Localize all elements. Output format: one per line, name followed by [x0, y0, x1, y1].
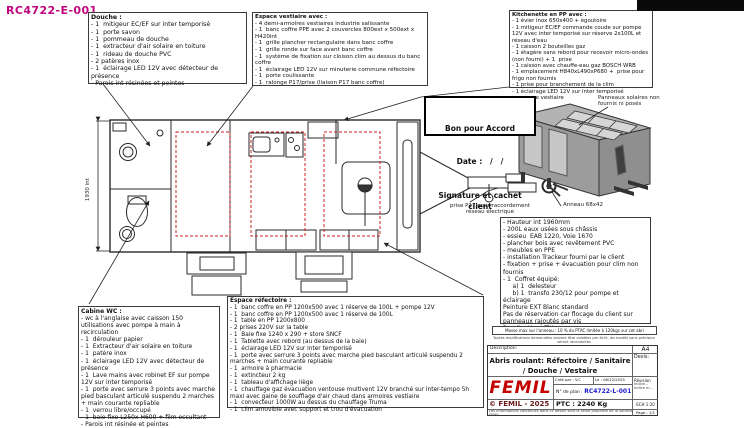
scale: ECH 1:20	[633, 400, 658, 410]
plan-number: RC4722-L-001	[584, 388, 631, 395]
list-item: - 1 chauffage gaz évacuation ventouse mu…	[230, 387, 481, 401]
list-item: - 1 mitigeur EC/EF sur inter temporisé	[91, 21, 244, 28]
fine-print-strip: Toutes modifications demandées doivent ê…	[490, 337, 658, 345]
list-item: - 1 dérouleur papier	[81, 336, 217, 343]
list-item: Pas de réservation car flocage du client…	[503, 311, 648, 325]
list-item: - 1 verrou libre/occupé	[81, 407, 217, 414]
list-item: - 1 clim amovible avec support et trou d…	[230, 407, 481, 414]
list-item: - 1 porte coulissante	[255, 73, 425, 80]
trailer-3d-view	[519, 104, 650, 196]
drawing-sheet: { "sheet_ref": "RC4722-E-001", "colors":…	[0, 0, 744, 422]
legal-note: Les informations contenues dans ce dessi…	[488, 410, 633, 416]
list-item: - 1 banc coffre en PP 1200x500 avec 1 ré…	[230, 312, 481, 319]
dimension-1930	[96, 121, 110, 251]
ring-label: Anneau 68x42	[563, 202, 613, 208]
list-item: - 1 étagère sans rebord pour recevoir mi…	[512, 50, 650, 63]
list-item: - 1 éclairage LED 12V avec détecteur de …	[91, 65, 244, 80]
list-item: - 1 système de fixation sur cloison clim…	[255, 54, 425, 67]
general-specs-items: - Hauteur int 1960mm- 200L eaux usées so…	[503, 219, 648, 332]
kitchenette-panel: Kitchenette en PP avec : - 1 évier inox …	[509, 10, 653, 88]
list-item: - 1 tableau d'affichage liège	[230, 380, 481, 387]
list-item: - 1 ralonge P17/prise (liaison P17 banc …	[255, 80, 425, 87]
list-item: - 1 rideau de douche PVC	[91, 51, 244, 58]
approval-line2: Date : / /	[426, 156, 534, 167]
approval-box: Bon pour Accord Date : / / Signature et …	[424, 96, 536, 136]
page-number: Page : 1/1	[633, 410, 658, 416]
list-item: - 1 Baie fixe 1240 x 290 + store SNCF	[230, 332, 481, 339]
drawing-description: Abris roulant: Réfectoire / Sanitaire / …	[488, 354, 633, 377]
list-item: - Parois int résinée et peintes	[81, 421, 217, 428]
list-item: - 1 patère inox	[81, 350, 217, 357]
list-item: - installation Trackeur fourni par le cl…	[503, 254, 648, 261]
list-item: - 200L eaux usées sous châssis	[503, 226, 648, 233]
list-item: b) 1 transfo 230/12 pour pompe et éclair…	[503, 290, 648, 304]
list-item: - Parois int résinées et peintes	[91, 80, 244, 87]
list-item: - 1 grille ronde sur face avant banc cof…	[255, 47, 425, 54]
copyright: © FEMIL - 2025	[488, 400, 554, 410]
list-item: - meubles en PPE	[503, 247, 648, 254]
list-item: - 1 Lave mains avec robinet EF sur pompe…	[81, 372, 217, 386]
list-item: - 1 extincteur 2 kg	[230, 373, 481, 380]
cabine-wc-items: - wc à l'anglaise avec caisson 150 utili…	[81, 315, 217, 428]
refectoire-title: Espace réfectoire :	[230, 298, 481, 305]
list-item: - 1 Tablette avec rebord (au dessus de l…	[230, 339, 481, 346]
created-by: Créé par : V.C	[554, 377, 594, 385]
list-item: - fixation + prise + évacuation pour cli…	[503, 261, 648, 275]
vestiaire-title: Espace vestiaire avec :	[255, 14, 425, 21]
devis-label: Devis:	[633, 354, 658, 377]
list-item: - 1 Coffret équipé:	[503, 276, 648, 283]
interior-height-dim-label: 1930 int	[85, 161, 91, 201]
screen-bezel-bar	[637, 0, 744, 11]
list-item: a) 1 delesteur	[503, 283, 648, 290]
list-item: - 1 porte avec serrure 3 points avec mar…	[81, 386, 217, 407]
list-item: - plancher bois avec revêtement PVC	[503, 240, 648, 247]
paper-format: A4	[633, 346, 658, 354]
list-item: - 1 éclairage LED 12V sur minuterie comm…	[255, 67, 425, 74]
approval-line1: Bon pour Accord	[426, 123, 534, 134]
list-item: - 1 extracteur d'air solaire en toiture	[91, 43, 244, 50]
creation-date: Le : 06/12/2025	[594, 377, 633, 385]
sheet-reference: RC4722-E-001	[6, 4, 98, 17]
list-item: - 1 table en PP 1200x800	[230, 318, 481, 325]
title-block: Description: A4 Abris roulant: Réfectoir…	[487, 345, 658, 416]
list-item: - 1 armoire à pharmacie	[230, 366, 481, 373]
list-item: - 1 grille plancher rectangulaire dans b…	[255, 40, 425, 47]
revision-cell: Révision Indice... Indice m...	[633, 377, 658, 400]
list-item: - 4 demi-armoires vestiaires industrie s…	[255, 21, 425, 28]
cabine-wc-title: Cabine WC :	[81, 308, 217, 315]
list-item: - 1 mitigeur EC/EF commande coude sur po…	[512, 25, 650, 44]
list-item: - 1 porte avec serrure 3 points avec mar…	[230, 353, 481, 367]
approval-line3: Signature et cachet client	[426, 190, 534, 213]
femil-logo: FEMIL	[488, 377, 554, 400]
list-item: - 1 éclairage LED 12V avec détecteur de …	[81, 358, 217, 372]
douche-panel: Douche : - 1 mitigeur EC/EF sur inter te…	[88, 12, 247, 84]
list-item: - 1 éclairage LED 12V sur inter temporis…	[230, 346, 481, 353]
list-item: - 1 porte savon	[91, 29, 244, 36]
list-item: - 1 emplacement H840xL490xP680 + prise p…	[512, 69, 650, 82]
entry-steps	[187, 252, 352, 295]
list-item: - 1 baie fixe L250x H600 + film occultan…	[81, 414, 217, 421]
list-item: - 1 Extracteur d'air solaire en toiture	[81, 343, 217, 350]
cabine-wc-panel: Cabine WC : - wc à l'anglaise avec caiss…	[78, 306, 220, 418]
kitchenette-items: - 1 évier inox 650x400 + égoutoire- 1 mi…	[512, 18, 650, 101]
general-specs-panel: - Hauteur int 1960mm- 200L eaux usées so…	[500, 217, 651, 324]
masse-note-strip: Masse max sur l'anneau : 10 % du PTAC li…	[492, 326, 657, 335]
refectoire-items: - 1 banc coffre en PP 1200x500 avec 1 ré…	[230, 305, 481, 414]
list-item: - wc à l'anglaise avec caisson 150 utili…	[81, 315, 217, 336]
list-item: - 1 banc coffre en PP 1200x500 avec 1 ré…	[230, 305, 481, 312]
refectoire-panel: Espace réfectoire : - 1 banc coffre en P…	[227, 296, 484, 408]
vestiaire-items: - 4 demi-armoires vestiaires industrie s…	[255, 21, 425, 87]
ptc-weight: PTC : 2240 Kg	[554, 400, 633, 410]
douche-items: - 1 mitigeur EC/EF sur inter temporisé- …	[91, 21, 244, 87]
revision-line2: Indice m...	[634, 387, 657, 391]
plan-number-cell: N° de plan : RC4722-L-001	[554, 385, 633, 400]
list-item: - 2 prises 220V sur la table	[230, 325, 481, 332]
list-item: - essieu EAB 1220, Voie 1670	[503, 233, 648, 240]
plan-number-label: N° de plan :	[556, 390, 584, 395]
list-item: - 1 banc coffre PPE avec 2 couvercles 80…	[255, 27, 425, 40]
list-item: - 1 pommeau de douche	[91, 36, 244, 43]
description-label: Description:	[488, 346, 633, 354]
vestiaire-panel: Espace vestiaire avec : - 4 demi-armoire…	[252, 12, 428, 86]
list-item: Peinture EXT Blanc standard	[503, 304, 648, 311]
